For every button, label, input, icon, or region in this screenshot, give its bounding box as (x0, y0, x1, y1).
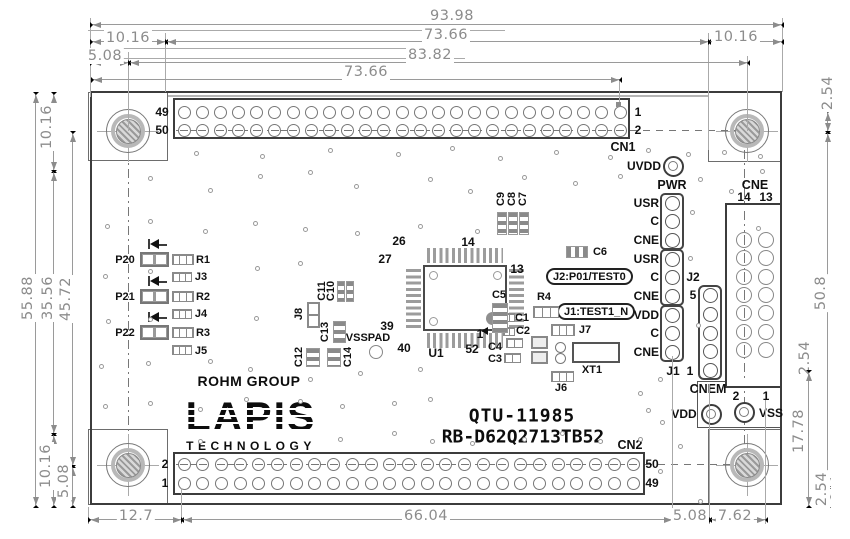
crystal-pad (531, 351, 548, 364)
via (698, 177, 703, 182)
component-ref-label: P20 (115, 254, 135, 266)
led-cell (143, 255, 153, 264)
via (298, 399, 303, 404)
via (638, 391, 643, 396)
pin-number-label: 50 (155, 123, 168, 137)
cn2-pin (383, 477, 396, 490)
cn2-pin (570, 477, 583, 490)
cn2-pin (439, 477, 452, 490)
dimension-label: 10.16 (104, 30, 152, 46)
vsspad-pad (369, 345, 383, 359)
via (646, 148, 651, 153)
capacitor-pads (327, 348, 341, 367)
dim-arrow (825, 131, 831, 142)
crystal-lead (555, 342, 566, 353)
via (573, 181, 578, 186)
dimension-line (808, 370, 809, 505)
u1-pin-number: 13 (510, 262, 523, 276)
component-ref-label: C2 (516, 325, 530, 337)
component-ref-label: C3 (488, 353, 502, 365)
u1-pin-number: 14 (461, 235, 474, 249)
via (658, 377, 663, 382)
led-polarity-bar (148, 276, 150, 286)
dimension-label: 5.08 (86, 48, 124, 64)
cn1-pin (414, 106, 427, 119)
led-cell (156, 255, 166, 264)
crystal-pad (531, 336, 548, 349)
cn2-pin-dash (423, 464, 431, 465)
pwr-pin (665, 252, 680, 267)
dim-arrow (165, 39, 176, 45)
capacitor-pads (519, 212, 529, 235)
via (678, 444, 683, 449)
via (340, 404, 345, 409)
dimension-label: 17.78 (791, 407, 807, 455)
pwr-pin-label: C (650, 270, 659, 284)
cnem-pin (703, 288, 718, 303)
cn1-pin (268, 106, 281, 119)
jumper-pad-cell (309, 316, 318, 326)
via (198, 407, 203, 412)
cn1-pin (432, 106, 445, 119)
via (722, 150, 727, 155)
dim-arrow (88, 517, 99, 523)
pwr-pin (665, 214, 680, 229)
cn1-pin (305, 106, 318, 119)
cn2-pin (215, 477, 228, 490)
dim-arrow (51, 170, 57, 181)
cn2-pin-dash (442, 464, 450, 465)
capacitor-pads (497, 212, 507, 235)
cn1-pin (250, 106, 263, 119)
jumper-pads-cell (186, 347, 191, 354)
cn1-pin (377, 106, 390, 119)
dimension-label: 45.72 (58, 275, 74, 323)
dim-arrow (773, 39, 784, 45)
led-cell (143, 328, 153, 337)
via (146, 361, 151, 366)
cn1-pin (614, 106, 627, 119)
via (198, 439, 203, 444)
pwr-pin-label: USR (634, 196, 659, 210)
mounting-hole-core (116, 453, 141, 478)
via (392, 401, 397, 406)
dim-arrow (51, 92, 57, 103)
via (560, 431, 565, 436)
cn1-pin (359, 106, 372, 119)
component-ref-label: C7 (517, 192, 529, 206)
cne-pin (758, 287, 774, 303)
cn2-pin (308, 477, 321, 490)
component-ref-label: C4 (488, 341, 502, 353)
cn2-pin-dash (199, 464, 207, 465)
dimension-label: 93.98 (428, 8, 476, 24)
led-polarity-icon (150, 276, 159, 286)
jumper-pads-cell (187, 293, 193, 301)
dimension-line (90, 24, 781, 25)
via (248, 367, 253, 372)
via (303, 227, 308, 232)
capacitor-pads (508, 212, 518, 235)
pwr-pin (665, 326, 680, 341)
vdd-label: VDD (671, 407, 696, 421)
via (148, 269, 153, 274)
pin-number-label: 1 (763, 389, 770, 403)
pwr-pin-label: CNE (634, 289, 659, 303)
via (254, 316, 259, 321)
pwr-pin-label: C (650, 214, 659, 228)
dimension-label: 55.88 (20, 274, 36, 322)
dim-arrow (70, 131, 76, 142)
dim-extension-line (708, 33, 709, 150)
cn2-pin-dash (592, 464, 600, 465)
capacitor-pads (337, 281, 345, 302)
dimension-label: 50.8 (813, 274, 829, 312)
pin-number-label: 14 (737, 190, 750, 204)
board-silk-line (168, 95, 708, 97)
jumper-pads-cell (174, 274, 179, 281)
via (358, 371, 363, 376)
via (298, 261, 303, 266)
dim-extension-line (747, 56, 748, 131)
cn2-pin-dash (217, 464, 225, 465)
via (255, 266, 260, 271)
cn2-pin (196, 477, 209, 490)
via (430, 439, 435, 444)
via (646, 408, 651, 413)
jumper-pad-cell (309, 304, 318, 314)
cn1-pin-dash (216, 130, 224, 131)
via (99, 364, 104, 369)
jumper-pads-cell (180, 329, 186, 337)
cn2-pin (533, 477, 546, 490)
jumper-pads-cell (180, 347, 185, 354)
cn2-pin-dash (367, 464, 375, 465)
vss-label: VSS (759, 406, 783, 420)
cne-pin-dash (744, 308, 745, 318)
cn2-pin-dash (348, 464, 356, 465)
capacitor-pads (346, 281, 354, 302)
component-ref-label: C10 (325, 281, 337, 301)
via (194, 151, 199, 156)
uvdd-testpoint-inner (668, 161, 678, 171)
via (554, 150, 559, 155)
cn1-pin (468, 106, 481, 119)
jumper-pads-cell (543, 308, 550, 317)
cne-pin-dash (744, 253, 745, 263)
dim-arrow (33, 92, 39, 103)
via (103, 274, 108, 279)
cn2-pin-dash (386, 464, 394, 465)
u1-corner-mark (429, 271, 438, 280)
component-ref-label: C5 (492, 289, 506, 301)
jumper-pads-cell (174, 293, 180, 301)
via (688, 256, 693, 261)
dim-arrow (91, 77, 102, 83)
capacitor-pads-cell (510, 315, 514, 321)
u1-pin-number: 40 (397, 341, 410, 355)
cne-pin-dash (744, 235, 745, 245)
u1-pin-number: 52 (465, 342, 478, 356)
cn1-pin-dash (289, 130, 297, 131)
via (148, 219, 153, 224)
cn1-pin (486, 106, 499, 119)
cn1-pin-dash (616, 130, 624, 131)
via (498, 156, 503, 161)
cn1-pin-dash (598, 130, 606, 131)
component-ref-label: J8 (293, 308, 305, 320)
dimension-label: 2.54 (820, 74, 836, 112)
dimension-label: 2.54 (814, 470, 830, 508)
component-ref-label: J5 (195, 345, 207, 357)
led-polarity-tail (159, 244, 167, 246)
led-cell (143, 292, 153, 301)
dimension-label: 10.16 (39, 103, 55, 151)
component-ref-label: C13 (319, 322, 331, 342)
pwr-pin (665, 289, 680, 304)
jumper-pads-cell (186, 311, 191, 318)
led-polarity-tail (159, 281, 167, 283)
component-ref-label: C14 (342, 347, 354, 367)
jumper-pads-cell (535, 308, 542, 317)
cn1-pin (505, 106, 518, 119)
pwr-pin-label: CNE (634, 233, 659, 247)
via (470, 441, 475, 446)
header-ref-label: J2 (686, 270, 699, 284)
component-ref-label: R3 (196, 327, 210, 339)
cnem-pin (703, 307, 718, 322)
cn1-pin (196, 106, 209, 119)
cn2-pin (552, 477, 565, 490)
cn1-pin-dash (398, 130, 406, 131)
cn1-pin-dash (235, 130, 243, 131)
via (106, 319, 111, 324)
led-polarity-icon (150, 239, 159, 249)
cn2-pin-dash (311, 464, 319, 465)
pwr-pin (665, 270, 680, 285)
via (203, 229, 208, 234)
cne-pin (758, 305, 774, 321)
via (690, 210, 695, 215)
cn2-pin (496, 477, 509, 490)
cn2-pin-dash (629, 464, 637, 465)
component-ref-label: J6 (555, 382, 567, 394)
cn2-pin-dash (274, 464, 282, 465)
via (696, 323, 701, 328)
cn2-pin (514, 477, 527, 490)
via (758, 154, 763, 159)
led-cell (156, 328, 166, 337)
via (258, 174, 263, 179)
cn1-pin (523, 106, 536, 119)
via (244, 397, 249, 402)
pcb-dimension-drawing: ROHM GROUP LAPIS TECHNOLOGY QTU-11985 RB… (0, 0, 850, 539)
jumper-pads-cell (180, 256, 186, 264)
cn1-pin (541, 106, 554, 119)
via (328, 148, 333, 153)
dimension-label: 83.82 (406, 47, 454, 63)
crystal-body (572, 342, 620, 363)
via (522, 175, 527, 180)
dim-extension-line (672, 356, 673, 524)
capacitor-pads (306, 348, 320, 367)
component-ref-label: XT1 (582, 364, 602, 376)
dim-arrow (90, 22, 101, 28)
cne-pin-dash (744, 345, 745, 355)
vsspad-label: VSSPAD (346, 332, 390, 344)
via (253, 221, 258, 226)
cn2-pin-dash (498, 464, 506, 465)
via (148, 176, 153, 181)
cn2-pin-dash (405, 464, 413, 465)
jumper-pads-cell (560, 326, 566, 335)
cn1-pin (577, 106, 590, 119)
via (338, 437, 343, 442)
cn2-pin (290, 477, 303, 490)
dim-arrow (757, 517, 768, 523)
capacitor-pads-cell (510, 329, 514, 335)
via (308, 170, 313, 175)
crystal-lead (555, 353, 566, 364)
via (660, 420, 665, 425)
component-ref-label: C1 (515, 312, 529, 324)
via (608, 155, 613, 160)
cn1-pin (341, 106, 354, 119)
cn1-pin-dash (271, 130, 279, 131)
cnem-pin (703, 326, 718, 341)
jumper-pads-cell (174, 347, 179, 354)
jumper-pads-cell (187, 329, 193, 337)
cn1-pin-dash (180, 130, 188, 131)
cne-pin (758, 269, 774, 285)
dim-hook-dot (616, 102, 621, 107)
u1-ref-label: U1 (428, 346, 443, 360)
u1-pin-strip (406, 268, 421, 328)
pwr-pin-label: CNE (634, 345, 659, 359)
u1-pin1-arrow-icon (481, 327, 488, 335)
pin-number-label: 49 (155, 105, 168, 119)
uvdd-label: UVDD (627, 159, 661, 173)
cne-pin (758, 324, 774, 340)
cn2-pin (365, 477, 378, 490)
dim-arrow (90, 39, 101, 45)
cn1-pin-dash (525, 130, 533, 131)
via (618, 174, 623, 179)
cn2-pin-dash (255, 464, 263, 465)
via (760, 169, 765, 174)
pin-number-label: 49 (645, 476, 658, 490)
dim-arrow (806, 370, 812, 381)
u1-corner-mark (429, 317, 438, 326)
via (354, 184, 359, 189)
u1-pin-number: 26 (392, 234, 405, 248)
cn2-pin (271, 477, 284, 490)
dim-arrow (181, 517, 192, 523)
pwr-pin (665, 308, 680, 323)
capacitor-pads (566, 246, 588, 258)
cn2-pin (589, 477, 602, 490)
via (208, 359, 213, 364)
component-ref-label: J4 (195, 308, 207, 320)
capacitor-pads-cell (513, 355, 520, 362)
component-ref-label: P21 (115, 291, 135, 303)
dimension-label: 5.08 (671, 508, 709, 524)
cn2-pin (252, 477, 265, 490)
cn1-pin (450, 106, 463, 119)
cne-pin (758, 342, 774, 358)
jumper-pads-cell (180, 274, 185, 281)
dimension-label: 10.16 (38, 442, 54, 490)
cn1-pin-dash (325, 130, 333, 131)
via (522, 437, 527, 442)
dimension-label: 73.66 (342, 64, 390, 80)
pin-number-label: 2 (733, 389, 740, 403)
via (308, 377, 313, 382)
pin-number-label: 13 (759, 190, 772, 204)
cn1-pin (396, 106, 409, 119)
dim-extension-line (782, 18, 783, 92)
cn2-pin (178, 477, 191, 490)
dimension-label: 35.56 (40, 274, 56, 322)
cn2-pin (477, 477, 490, 490)
cn1-pin-dash (562, 130, 570, 131)
component-ref-label: P22 (115, 327, 135, 339)
jumper-pads-cell (186, 274, 191, 281)
cne-pin-dash (744, 290, 745, 300)
capacitor-pads (333, 321, 346, 343)
cnem-label: CNEM (690, 382, 727, 396)
cnem-pin (703, 363, 718, 378)
via (698, 499, 703, 504)
cn2-pin-dash (517, 464, 525, 465)
cn2-pin-dash (292, 464, 300, 465)
cn2-pin-dash (180, 464, 188, 465)
cn1-pin (595, 106, 608, 119)
pwr-pin (665, 233, 680, 248)
cn2-pin (234, 477, 247, 490)
mounting-hole-core (735, 453, 760, 478)
dim-extension-line (90, 48, 433, 49)
via (208, 188, 213, 193)
cne-pin (758, 232, 774, 248)
cn1-pin-dash (380, 130, 388, 131)
cn2-pin-dash (535, 464, 543, 465)
via (450, 146, 455, 151)
cn1-pin-dash (543, 130, 551, 131)
via (428, 397, 433, 402)
cn1-pin-dash (198, 130, 206, 131)
cn1-pin-dash (507, 130, 515, 131)
cn1-pin (323, 106, 336, 119)
via (392, 431, 397, 436)
led-cell (156, 292, 166, 301)
pin-number-label: 1 (687, 364, 694, 378)
via (148, 317, 153, 322)
via (686, 152, 691, 157)
cn2-pin-dash (330, 464, 338, 465)
u1-corner-mark (493, 271, 502, 280)
dimension-label: 10.16 (712, 29, 760, 45)
pin-number-label: 2 (162, 457, 169, 471)
via (468, 189, 473, 194)
via (260, 154, 265, 159)
pin-number-label: 1 (162, 476, 169, 490)
cn1-pin-dash (362, 130, 370, 131)
dim-arrow (806, 497, 812, 508)
pin-number-label: 5 (690, 288, 697, 302)
via (756, 226, 761, 231)
cn1-pin (559, 106, 572, 119)
